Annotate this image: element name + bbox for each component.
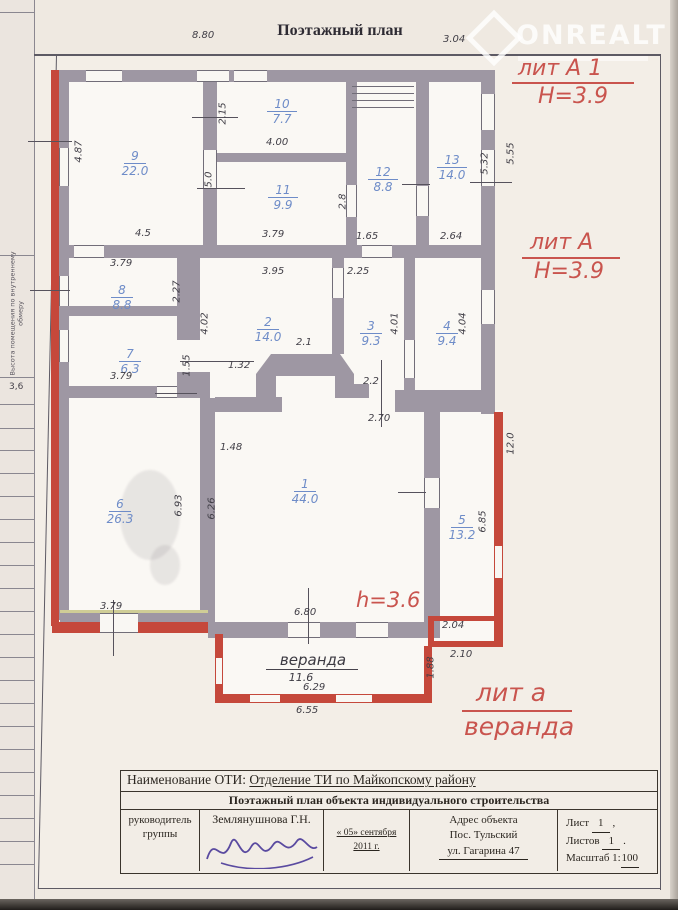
door-opening <box>362 245 392 258</box>
dim-label: 1.48 <box>220 442 242 453</box>
window <box>100 613 138 633</box>
left-form-strip: Высота помещения по внутреннему обмеру 3… <box>0 0 35 899</box>
dim-label: 3.04 <box>443 34 465 45</box>
veranda-label: веранда <box>266 651 360 669</box>
door-opening <box>157 386 177 398</box>
strip-ruled-lines <box>0 428 34 886</box>
wall-room4-room5 <box>395 390 495 412</box>
room-label-2: 214.0 <box>238 312 298 344</box>
annotation-veranda: веранда <box>464 712 574 741</box>
wall-room7-room6 <box>59 386 157 398</box>
door-opening <box>332 268 344 298</box>
stairs-line <box>352 93 414 94</box>
door-opening <box>404 340 415 378</box>
door-opening <box>424 478 440 508</box>
dim-label: 1.32 <box>228 360 250 371</box>
doc-title-row: Поэтажный план объекта индивидуального с… <box>121 792 657 810</box>
sheet-border-bottom <box>38 888 661 889</box>
wall-mid-horizontal <box>59 245 495 258</box>
sidebar-rotated-label: Высота помещения по внутреннему обмеру <box>9 249 26 377</box>
oti-label: Наименование ОТИ: <box>127 772 246 787</box>
stairs-line <box>352 100 414 101</box>
name-cell: Землянушнова Г.Н. <box>200 810 324 871</box>
footer-table: Наименование ОТИ: Отделение ТИ по Майкоп… <box>120 770 658 874</box>
dim-label: 3.79 <box>100 601 122 612</box>
dim-label: 1.65 <box>356 231 378 242</box>
wall-left-red <box>51 70 59 626</box>
sheet-info-cell: Лист 1 , Листов 1 . Масштаб 1:100 <box>558 810 653 871</box>
dim-label: 2.04 <box>442 620 464 631</box>
dim-tick <box>30 290 70 291</box>
dim-label: 2.8 <box>338 187 349 217</box>
dim-label: 1.88 <box>426 653 437 683</box>
room-label-10: 107.7 <box>252 94 312 126</box>
window <box>494 546 503 578</box>
dim-label: 2.27 <box>172 277 183 307</box>
dim-label: 12.0 <box>506 429 517 459</box>
room-label-6: 626.3 <box>90 494 150 526</box>
dim-label: 6.80 <box>294 607 316 618</box>
veranda-area: 11.6 <box>266 671 336 684</box>
annotation-lit-a: лит А <box>530 230 593 255</box>
signature <box>201 827 323 869</box>
door-swing-line <box>155 393 197 394</box>
door-opening <box>416 186 429 216</box>
dim-label: 4.02 <box>200 309 211 339</box>
sheet-border-right <box>660 54 661 890</box>
window <box>59 148 69 186</box>
room-label-11: 119.9 <box>253 180 313 212</box>
role-cell: руководитель группы <box>121 810 200 871</box>
window <box>481 290 495 324</box>
dim-label: 4.01 <box>390 309 401 339</box>
wall-room5-bottom-red <box>428 616 503 621</box>
dim-label: 2.25 <box>347 266 369 277</box>
dim-label: 4.87 <box>74 137 85 167</box>
address-cell: Адрес объекта Пос. Тульский ул. Гагарина… <box>410 810 558 871</box>
dim-label: 2.64 <box>440 231 462 242</box>
wall-room5-right-red <box>494 412 503 646</box>
dim-label: 2.15 <box>218 99 229 129</box>
dim-label: 6.85 <box>478 507 489 537</box>
dim-tick <box>192 117 238 118</box>
room-label-1: 144.0 <box>275 474 335 506</box>
dim-label: 6.26 <box>207 494 218 524</box>
scanned-floor-plan-page: Высота помещения по внутреннему обмеру 3… <box>0 0 678 910</box>
window-mullion <box>229 70 234 82</box>
annotation-inner-height: h=3.6 <box>356 588 420 612</box>
wall-top <box>59 70 491 82</box>
sidebar-height-value: 3,6 <box>9 382 23 392</box>
stairs-line <box>352 107 414 108</box>
room-label-9: 922.0 <box>105 146 165 178</box>
dim-label: 5.0 <box>204 165 215 195</box>
room-label-12: 128.8 <box>353 162 413 194</box>
dim-label: 4.5 <box>135 228 151 239</box>
annotation-lit-a-height: Н=3.9 <box>534 259 604 284</box>
page-edge-shadow <box>670 0 678 910</box>
scan-smudge <box>150 545 180 585</box>
dim-label: 2.2 <box>363 376 379 387</box>
room-label-13: 1314.0 <box>422 150 482 182</box>
watermark-logo-icon <box>466 10 523 67</box>
window <box>356 622 388 638</box>
date-cell: « 05» сентября 2011 г. <box>324 810 410 871</box>
page-edge-shadow <box>0 899 678 910</box>
wall-veranda-bottom <box>215 694 432 703</box>
page-title: Поэтажный план <box>240 22 440 40</box>
annotation-lit-a-small: лит а <box>476 678 546 707</box>
window <box>86 70 122 82</box>
window <box>481 94 495 130</box>
dim-label: 3.79 <box>262 229 284 240</box>
dim-label: 6.93 <box>174 491 185 521</box>
dim-label: 5.32 <box>480 149 491 179</box>
oti-row: Наименование ОТИ: Отделение ТИ по Майкоп… <box>121 771 657 792</box>
dim-label: 3.79 <box>110 258 132 269</box>
dim-label: 1.55 <box>182 351 193 381</box>
annotation-lit-a1-height: Н=3.9 <box>538 84 608 109</box>
dim-label: 4.04 <box>458 309 469 339</box>
wall-room10-room11 <box>217 153 346 162</box>
dim-label: 4.00 <box>266 137 288 148</box>
wall-room1-bottom <box>208 622 440 638</box>
wall-room5-bottom-red <box>428 641 503 647</box>
dim-label: 3.95 <box>262 266 284 277</box>
dim-label: 2.70 <box>368 413 390 424</box>
strip-divider <box>0 404 34 405</box>
window <box>250 694 280 703</box>
dim-label: 8.80 <box>192 30 214 41</box>
window <box>215 658 223 684</box>
wall-bay <box>250 350 360 400</box>
stairs-line <box>352 86 414 87</box>
window <box>59 330 69 362</box>
annotation-lit-a1: лит А 1 <box>518 56 602 81</box>
door-swing-line <box>398 492 426 493</box>
strip-divider <box>0 12 34 13</box>
dim-label: 2.10 <box>450 649 472 660</box>
dim-label: 2.1 <box>296 337 312 348</box>
dim-label: 6.29 <box>303 682 325 693</box>
watermark-brand: ONREALT <box>516 20 667 51</box>
oti-value: Отделение ТИ по Майкопскому району <box>249 772 475 787</box>
dim-label: 6.55 <box>296 705 318 716</box>
wall-room5-red <box>428 616 434 647</box>
dim-tick <box>28 141 72 142</box>
room-label-8: 88.8 <box>92 280 152 312</box>
door-opening <box>288 622 320 638</box>
dim-label: 5.55 <box>506 139 517 169</box>
door-opening <box>74 245 104 258</box>
specialist-name: Землянушнова Г.Н. <box>200 812 323 827</box>
window <box>336 694 372 703</box>
dim-label: 3.79 <box>110 371 132 382</box>
